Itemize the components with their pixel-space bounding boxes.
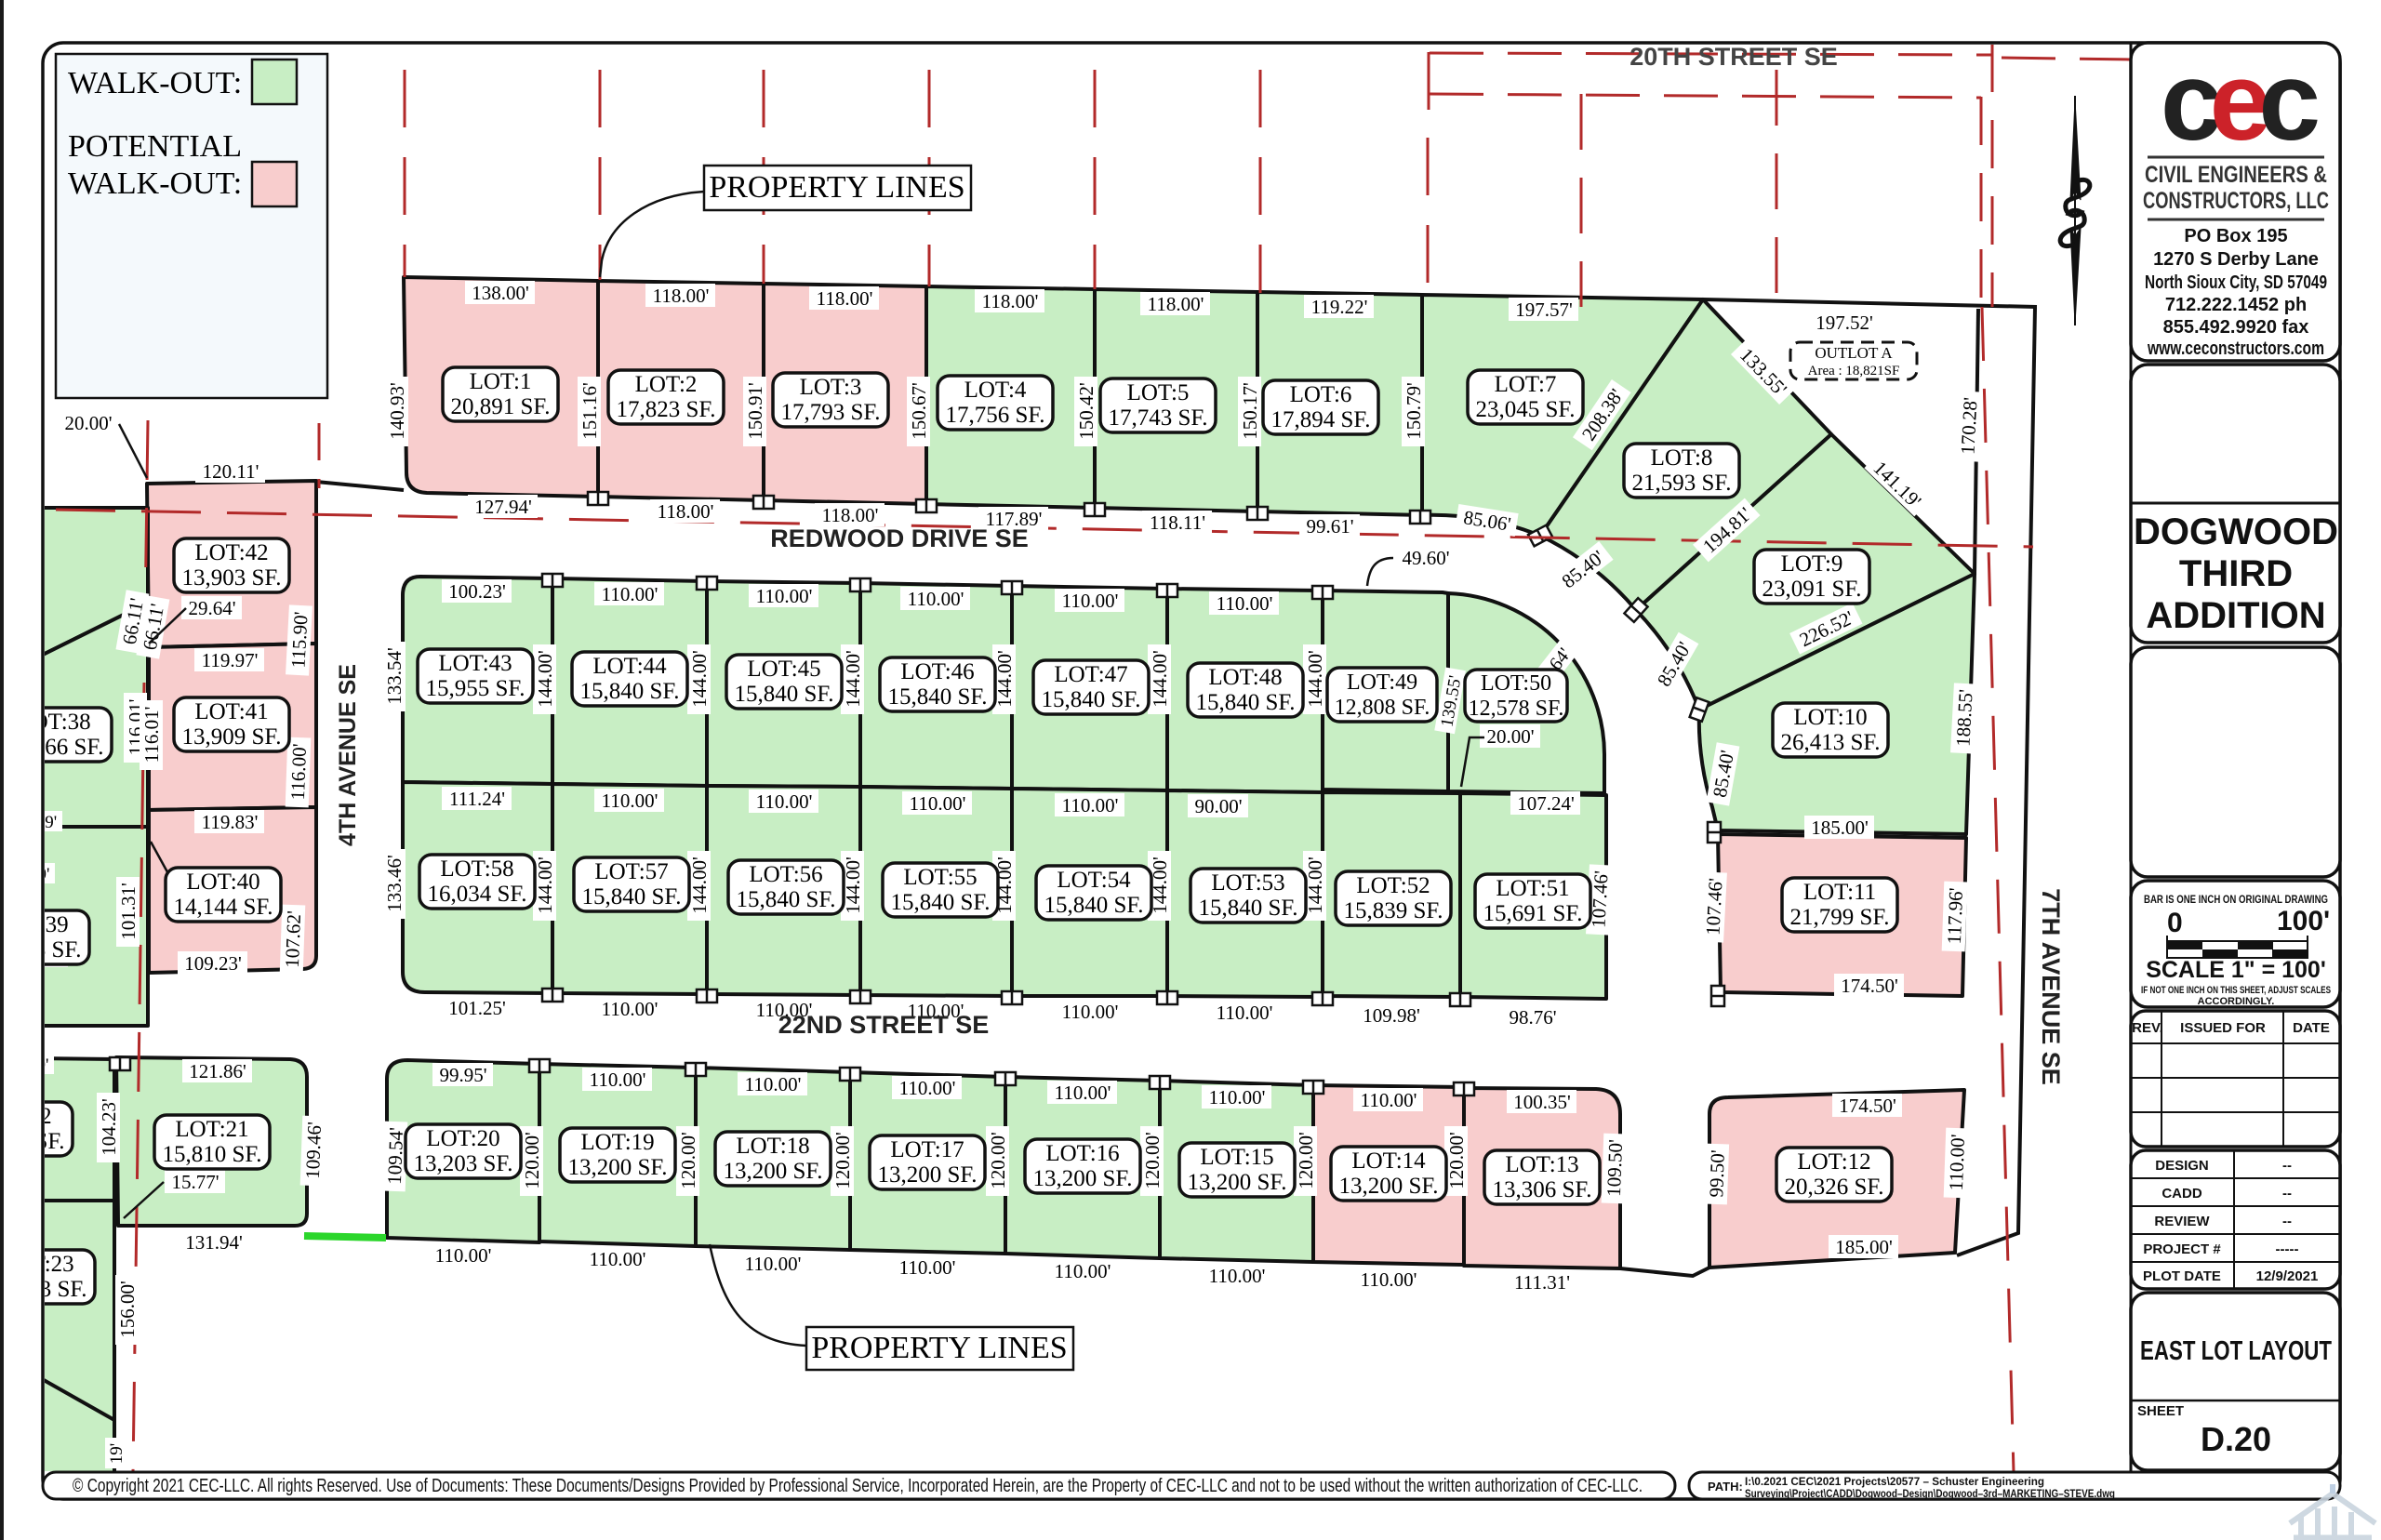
svg-text:12,808 SF.: 12,808 SF. <box>1335 696 1430 720</box>
svg-text:--: -- <box>2282 1186 2292 1201</box>
svg-text:110.00': 110.00' <box>602 998 658 1020</box>
svg-text:107.46': 107.46' <box>1701 878 1726 936</box>
svg-text:185.00': 185.00' <box>1811 816 1869 839</box>
svg-text:REVIEW: REVIEW <box>2154 1214 2210 1229</box>
svg-text:855.492.9920 fax: 855.492.9920 fax <box>2163 317 2309 338</box>
svg-text:19': 19' <box>107 1443 126 1464</box>
svg-text:LOT:12: LOT:12 <box>1797 1149 1870 1175</box>
svg-text:LOT:4: LOT:4 <box>964 378 1027 403</box>
svg-text:185.00': 185.00' <box>1835 1236 1893 1258</box>
svg-text:15,840 SF.: 15,840 SF. <box>736 887 835 912</box>
svg-text:109.46': 109.46' <box>301 1122 326 1179</box>
svg-text:LOT:44: LOT:44 <box>592 654 667 679</box>
svg-text:20,891 SF.: 20,891 SF. <box>450 394 550 419</box>
svg-text:110.00': 110.00' <box>1209 1086 1266 1109</box>
svg-text:144.00': 144.00' <box>1149 650 1171 708</box>
svg-text:712.222.1452 ph: 712.222.1452 ph <box>2165 295 2307 315</box>
svg-text:REV.: REV. <box>2132 1020 2163 1036</box>
svg-text:LOT:18: LOT:18 <box>736 1134 809 1159</box>
svg-text:LOT:56: LOT:56 <box>749 862 822 887</box>
svg-text:109.50': 109.50' <box>1603 1139 1627 1197</box>
svg-text:17,823 SF.: 17,823 SF. <box>616 397 715 422</box>
svg-text:118.00': 118.00' <box>658 500 714 523</box>
svg-text:110.00': 110.00' <box>590 1248 646 1270</box>
svg-text:15,839 SF.: 15,839 SF. <box>1343 898 1443 923</box>
svg-text:99.50': 99.50' <box>1705 1149 1729 1198</box>
svg-text:140.93': 140.93' <box>386 382 408 440</box>
svg-text:100.35': 100.35' <box>1513 1091 1571 1113</box>
svg-text:118.00': 118.00' <box>653 285 710 307</box>
svg-text:LOT:5: LOT:5 <box>1127 380 1190 405</box>
svg-text:110.00': 110.00' <box>1062 1001 1119 1023</box>
svg-text:LOT:19: LOT:19 <box>580 1130 654 1155</box>
svg-text:120.00': 120.00' <box>987 1132 1009 1189</box>
svg-text:0: 0 <box>2167 908 2183 938</box>
svg-text:LOT:43: LOT:43 <box>438 651 512 676</box>
svg-text:17,894 SF.: 17,894 SF. <box>1270 407 1370 432</box>
svg-text:LOT:8: LOT:8 <box>1651 445 1713 471</box>
svg-text:110.00': 110.00' <box>908 588 964 610</box>
svg-text:LOT:49: LOT:49 <box>1347 670 1417 695</box>
svg-text:119.22': 119.22' <box>1311 296 1368 318</box>
svg-text:13,200 SF.: 13,200 SF. <box>1187 1170 1286 1195</box>
svg-text:15,840 SF.: 15,840 SF. <box>890 890 990 915</box>
svg-text:--: -- <box>2282 1214 2292 1229</box>
svg-text:BAR IS ONE INCH ON ORIGINAL DR: BAR IS ONE INCH ON ORIGINAL DRAWING <box>2144 893 2328 906</box>
svg-text:109.23': 109.23' <box>184 952 242 975</box>
svg-text:150.79': 150.79' <box>1403 382 1425 440</box>
svg-text:CADD: CADD <box>2162 1186 2201 1201</box>
svg-text:Surveying\Project\CADD\Dogwood: Surveying\Project\CADD\Dogwood–Design\Do… <box>1745 1487 2115 1500</box>
svg-text:WALK-OUT:: WALK-OUT: <box>68 166 242 201</box>
svg-text:LOT:13: LOT:13 <box>1505 1152 1578 1177</box>
svg-text:LOT:16: LOT:16 <box>1045 1141 1119 1166</box>
svg-text:120.00': 120.00' <box>831 1132 854 1189</box>
svg-text:CIVIL ENGINEERS &: CIVIL ENGINEERS & <box>2145 162 2327 188</box>
svg-text:150.42': 150.42' <box>1075 382 1097 440</box>
svg-text:118.11': 118.11' <box>1150 511 1205 534</box>
svg-text:ACCORDINGLY.: ACCORDINGLY. <box>2198 996 2275 1007</box>
svg-text:www.ceconstructors.com: www.ceconstructors.com <box>2147 339 2324 359</box>
svg-text:110.00': 110.00' <box>1055 1260 1111 1282</box>
svg-text:LOT:2: LOT:2 <box>635 372 698 397</box>
svg-text:127.94': 127.94' <box>474 496 532 518</box>
svg-text:ADDITION: ADDITION <box>2146 595 2325 636</box>
svg-text:POTENTIAL: POTENTIAL <box>68 129 242 164</box>
svg-text:15,691 SF.: 15,691 SF. <box>1483 901 1582 926</box>
svg-text:150.91': 150.91' <box>744 382 766 440</box>
svg-text:104.23': 104.23' <box>98 1098 120 1156</box>
svg-text:LOT:42: LOT:42 <box>194 540 268 565</box>
svg-text:120.00': 120.00' <box>677 1132 699 1189</box>
svg-text:LOT:45: LOT:45 <box>747 657 820 682</box>
svg-text:LOT:10: LOT:10 <box>1793 705 1867 730</box>
svg-text:16,034 SF.: 16,034 SF. <box>427 882 526 907</box>
svg-text:LOT:58: LOT:58 <box>440 856 513 882</box>
svg-text:110.00': 110.00' <box>756 585 813 607</box>
svg-text:15,840 SF.: 15,840 SF. <box>1044 893 1143 918</box>
svg-text:LOT:41: LOT:41 <box>194 699 268 724</box>
svg-text:107.24': 107.24' <box>1517 792 1575 815</box>
svg-text:Area : 18,821SF: Area : 18,821SF <box>1808 364 1900 378</box>
svg-text:118.00': 118.00' <box>817 287 873 310</box>
svg-text:110.00': 110.00' <box>602 583 658 605</box>
svg-text:110.00': 110.00' <box>1055 1082 1111 1104</box>
svg-text:119.83': 119.83' <box>202 811 259 833</box>
svg-text:23,091 SF.: 23,091 SF. <box>1762 577 1861 602</box>
svg-text:LOT:14: LOT:14 <box>1351 1148 1426 1174</box>
svg-text:7TH AVENUE SE: 7TH AVENUE SE <box>2037 888 2065 1085</box>
svg-text:151.16': 151.16' <box>579 382 601 440</box>
svg-text:107.62': 107.62' <box>281 910 305 968</box>
svg-text:110.00': 110.00' <box>899 1077 956 1099</box>
svg-text:15,840 SF.: 15,840 SF. <box>1195 690 1295 715</box>
svg-text:PROPERTY LINES: PROPERTY LINES <box>811 1331 1067 1365</box>
svg-text:20,326 SF.: 20,326 SF. <box>1784 1175 1883 1200</box>
svg-text:SCALE 1" = 100': SCALE 1" = 100' <box>2146 957 2326 983</box>
svg-text:REDWOOD DRIVE SE: REDWOOD DRIVE SE <box>770 524 1029 552</box>
svg-text:1270 S Derby Lane: 1270 S Derby Lane <box>2153 249 2319 270</box>
svg-text:12,578 SF.: 12,578 SF. <box>1469 697 1564 721</box>
svg-text:21,593 SF.: 21,593 SF. <box>1631 471 1731 496</box>
svg-text:120.00': 120.00' <box>1295 1132 1317 1189</box>
svg-text:SHEET: SHEET <box>2137 1403 2184 1419</box>
svg-text:15,840 SF.: 15,840 SF. <box>734 682 833 707</box>
svg-text:WALK-OUT:: WALK-OUT: <box>68 66 242 100</box>
svg-text:15,840 SF.: 15,840 SF. <box>579 679 679 704</box>
svg-text:144.00': 144.00' <box>534 650 556 708</box>
svg-text:cec: cec <box>2161 39 2319 164</box>
svg-text:116.01': 116.01' <box>140 707 163 763</box>
svg-text:15,810 SF.: 15,810 SF. <box>162 1142 261 1167</box>
svg-text:150.17': 150.17' <box>1239 382 1261 440</box>
svg-text:-----: ----- <box>2276 1241 2299 1257</box>
svg-text:EAST LOT LAYOUT: EAST LOT LAYOUT <box>2140 1336 2332 1366</box>
svg-text:PLOT DATE: PLOT DATE <box>2143 1268 2221 1284</box>
svg-text:133.54': 133.54' <box>383 647 406 705</box>
svg-text:13,306 SF.: 13,306 SF. <box>1492 1177 1591 1202</box>
svg-text:197.52': 197.52' <box>1816 312 1873 334</box>
svg-text:LOT:9: LOT:9 <box>1781 551 1843 577</box>
svg-text:144.00': 144.00' <box>534 856 556 914</box>
svg-text:PATH:: PATH: <box>1708 1480 1743 1494</box>
svg-text:110.00': 110.00' <box>899 1256 956 1279</box>
svg-text:LOT:11: LOT:11 <box>1803 880 1876 905</box>
svg-text:LOT:54: LOT:54 <box>1057 868 1131 893</box>
svg-text:20.00': 20.00' <box>1486 725 1534 748</box>
svg-text:118.00': 118.00' <box>822 504 879 526</box>
svg-text:© Copyright 2021 CEC-LLC. All: © Copyright 2021 CEC-LLC. All rights Res… <box>73 1476 1643 1496</box>
svg-text:13,200 SF.: 13,200 SF. <box>1338 1174 1438 1199</box>
svg-text:174.50': 174.50' <box>1839 1095 1896 1117</box>
svg-text:118.00': 118.00' <box>1148 293 1204 315</box>
svg-text:OUTLOT A: OUTLOT A <box>1815 344 1893 362</box>
svg-text:110.00': 110.00' <box>602 790 658 812</box>
svg-text:116.00': 116.00' <box>286 743 311 801</box>
svg-text:23,045 SF.: 23,045 SF. <box>1475 397 1575 422</box>
svg-text:49.60': 49.60' <box>1402 547 1449 569</box>
svg-text:LOT:15: LOT:15 <box>1200 1145 1273 1170</box>
svg-text:15,840 SF.: 15,840 SF. <box>581 884 681 909</box>
svg-text:188.55': 188.55' <box>1951 689 1976 748</box>
svg-text:15,955 SF.: 15,955 SF. <box>425 676 525 701</box>
svg-text:DATE: DATE <box>2293 1020 2330 1036</box>
svg-text:115.90': 115.90' <box>286 611 312 669</box>
svg-text:121.86': 121.86' <box>189 1060 246 1082</box>
svg-text:17,793 SF.: 17,793 SF. <box>780 400 880 425</box>
svg-text:LOT:7: LOT:7 <box>1495 372 1557 397</box>
svg-text:PROPERTY LINES: PROPERTY LINES <box>709 170 964 205</box>
svg-text:--: -- <box>2282 1158 2292 1174</box>
svg-text:LOT:48: LOT:48 <box>1208 665 1282 690</box>
svg-text:144.00': 144.00' <box>688 650 711 708</box>
svg-text:110.00': 110.00' <box>1217 1002 1273 1024</box>
svg-text:20.00': 20.00' <box>64 412 112 434</box>
svg-text:15,840 SF.: 15,840 SF. <box>887 684 987 710</box>
svg-text:111.31': 111.31' <box>1514 1271 1570 1294</box>
svg-text:PO Box 195: PO Box 195 <box>2184 226 2287 246</box>
svg-text:LOT:50: LOT:50 <box>1481 671 1551 696</box>
svg-text:LOT:1: LOT:1 <box>470 369 532 394</box>
svg-text:118.00': 118.00' <box>982 290 1039 312</box>
svg-text:LOT:20: LOT:20 <box>426 1126 499 1151</box>
svg-text:LOT:17: LOT:17 <box>890 1137 964 1162</box>
svg-text:17,743 SF.: 17,743 SF. <box>1108 405 1207 431</box>
svg-text:DESIGN: DESIGN <box>2155 1158 2209 1174</box>
svg-text:ISSUED FOR: ISSUED FOR <box>2180 1020 2266 1036</box>
svg-text:99.95': 99.95' <box>439 1064 486 1086</box>
svg-text:20TH STREET SE: 20TH STREET SE <box>1629 43 1838 71</box>
svg-text:North Sioux City, SD 57049: North Sioux City, SD 57049 <box>2145 272 2327 293</box>
svg-text:22ND STREET SE: 22ND STREET SE <box>778 1011 990 1039</box>
svg-text:110.00': 110.00' <box>1062 590 1119 612</box>
svg-text:26,413 SF.: 26,413 SF. <box>1780 730 1880 755</box>
svg-text:101.25': 101.25' <box>448 997 506 1019</box>
svg-text:DOGWOOD: DOGWOOD <box>2134 511 2338 552</box>
svg-text:174.50': 174.50' <box>1841 975 1898 997</box>
svg-text:109.54': 109.54' <box>383 1127 407 1185</box>
svg-text:15,840 SF.: 15,840 SF. <box>1041 687 1140 712</box>
svg-text:144.00': 144.00' <box>842 650 864 708</box>
svg-text:13,200 SF.: 13,200 SF. <box>567 1155 667 1180</box>
svg-text:14,144 SF.: 14,144 SF. <box>173 895 273 920</box>
svg-text:133.46': 133.46' <box>383 855 406 912</box>
svg-text:170.28': 170.28' <box>1956 397 1981 456</box>
svg-text:117.96': 117.96' <box>1943 887 1967 945</box>
svg-text:12/9/2021: 12/9/2021 <box>2256 1268 2319 1284</box>
svg-text:110.00': 110.00' <box>435 1244 492 1267</box>
svg-text:CONSTRUCTORS, LLC: CONSTRUCTORS, LLC <box>2143 188 2329 214</box>
svg-text:IF NOT ONE INCH ON THIS SHEET,: IF NOT ONE INCH ON THIS SHEET, ADJUST SC… <box>2141 985 2331 996</box>
svg-text:15.77': 15.77' <box>171 1171 219 1193</box>
svg-text:17,756 SF.: 17,756 SF. <box>945 403 1044 428</box>
svg-text:99.61': 99.61' <box>1306 515 1353 538</box>
svg-text:LOT:21: LOT:21 <box>175 1117 248 1142</box>
svg-text:110.00': 110.00' <box>590 1069 646 1091</box>
svg-text:I:\0.2021 CEC\2021 Projects\: I:\0.2021 CEC\2021 Projects\20577 – Schu… <box>1745 1475 2044 1488</box>
svg-text:13,200 SF.: 13,200 SF. <box>877 1162 977 1188</box>
svg-text:13,909 SF.: 13,909 SF. <box>181 724 281 750</box>
svg-text:109.98': 109.98' <box>1363 1004 1420 1027</box>
svg-text:D.20: D.20 <box>2201 1420 2271 1458</box>
svg-text:13,200 SF.: 13,200 SF. <box>1032 1166 1132 1191</box>
svg-text:THIRD: THIRD <box>2179 553 2293 594</box>
svg-text:4TH AVENUE SE: 4TH AVENUE SE <box>335 664 361 846</box>
svg-text:111.24': 111.24' <box>449 788 505 810</box>
svg-text:110.00': 110.00' <box>1217 592 1273 615</box>
svg-text:110.00': 110.00' <box>1945 1134 1969 1191</box>
svg-text:98.76': 98.76' <box>1509 1006 1556 1029</box>
svg-text:110.00': 110.00' <box>910 792 966 815</box>
svg-text:150.67': 150.67' <box>908 382 930 440</box>
svg-text:LOT:6: LOT:6 <box>1290 382 1352 407</box>
svg-text:101.31': 101.31' <box>117 883 140 940</box>
svg-text:131.94': 131.94' <box>185 1231 243 1254</box>
svg-text:197.57': 197.57' <box>1515 299 1573 321</box>
svg-text:110.00': 110.00' <box>1062 794 1119 816</box>
svg-text:144.00': 144.00' <box>688 856 711 914</box>
svg-text:110.00': 110.00' <box>745 1253 802 1275</box>
svg-text:LOT:55: LOT:55 <box>903 865 977 890</box>
svg-text:120.11': 120.11' <box>203 460 259 483</box>
svg-text:LOT:51: LOT:51 <box>1496 876 1569 901</box>
svg-text:110.00': 110.00' <box>745 1073 802 1095</box>
svg-text:120.00': 120.00' <box>1445 1132 1468 1189</box>
svg-text:LOT:53: LOT:53 <box>1211 870 1284 896</box>
svg-text:110.00': 110.00' <box>1361 1089 1417 1111</box>
svg-text:156.00': 156.00' <box>116 1281 139 1338</box>
svg-text:13,903 SF.: 13,903 SF. <box>181 565 281 591</box>
svg-text:100': 100' <box>2277 906 2330 936</box>
svg-text:110.00': 110.00' <box>1209 1265 1266 1287</box>
svg-text:120.00': 120.00' <box>1141 1132 1164 1189</box>
svg-text:100.23': 100.23' <box>448 580 506 603</box>
svg-text:15,840 SF.: 15,840 SF. <box>1198 896 1297 921</box>
svg-text:13,203 SF.: 13,203 SF. <box>413 1151 512 1176</box>
svg-text:LOT:52: LOT:52 <box>1356 873 1430 898</box>
svg-text:LOT:57: LOT:57 <box>594 859 668 884</box>
svg-text:LOT:40: LOT:40 <box>186 870 259 895</box>
svg-text:110.00': 110.00' <box>1361 1268 1417 1291</box>
svg-text:29.64': 29.64' <box>188 597 235 619</box>
svg-text:13,200 SF.: 13,200 SF. <box>723 1159 822 1184</box>
svg-text:LOT:46: LOT:46 <box>900 659 974 684</box>
svg-text:138.00': 138.00' <box>472 282 529 304</box>
svg-text:21,799 SF.: 21,799 SF. <box>1789 905 1889 930</box>
svg-text:LOT:3: LOT:3 <box>800 375 862 400</box>
svg-text:110.00': 110.00' <box>756 790 813 813</box>
svg-text:90.00': 90.00' <box>1194 795 1242 817</box>
svg-text:119.97': 119.97' <box>202 649 259 671</box>
svg-text:120.00': 120.00' <box>521 1132 543 1189</box>
svg-text:144.00': 144.00' <box>1304 650 1326 708</box>
svg-text:LOT:47: LOT:47 <box>1054 662 1127 687</box>
svg-text:PROJECT #: PROJECT # <box>2143 1241 2221 1257</box>
